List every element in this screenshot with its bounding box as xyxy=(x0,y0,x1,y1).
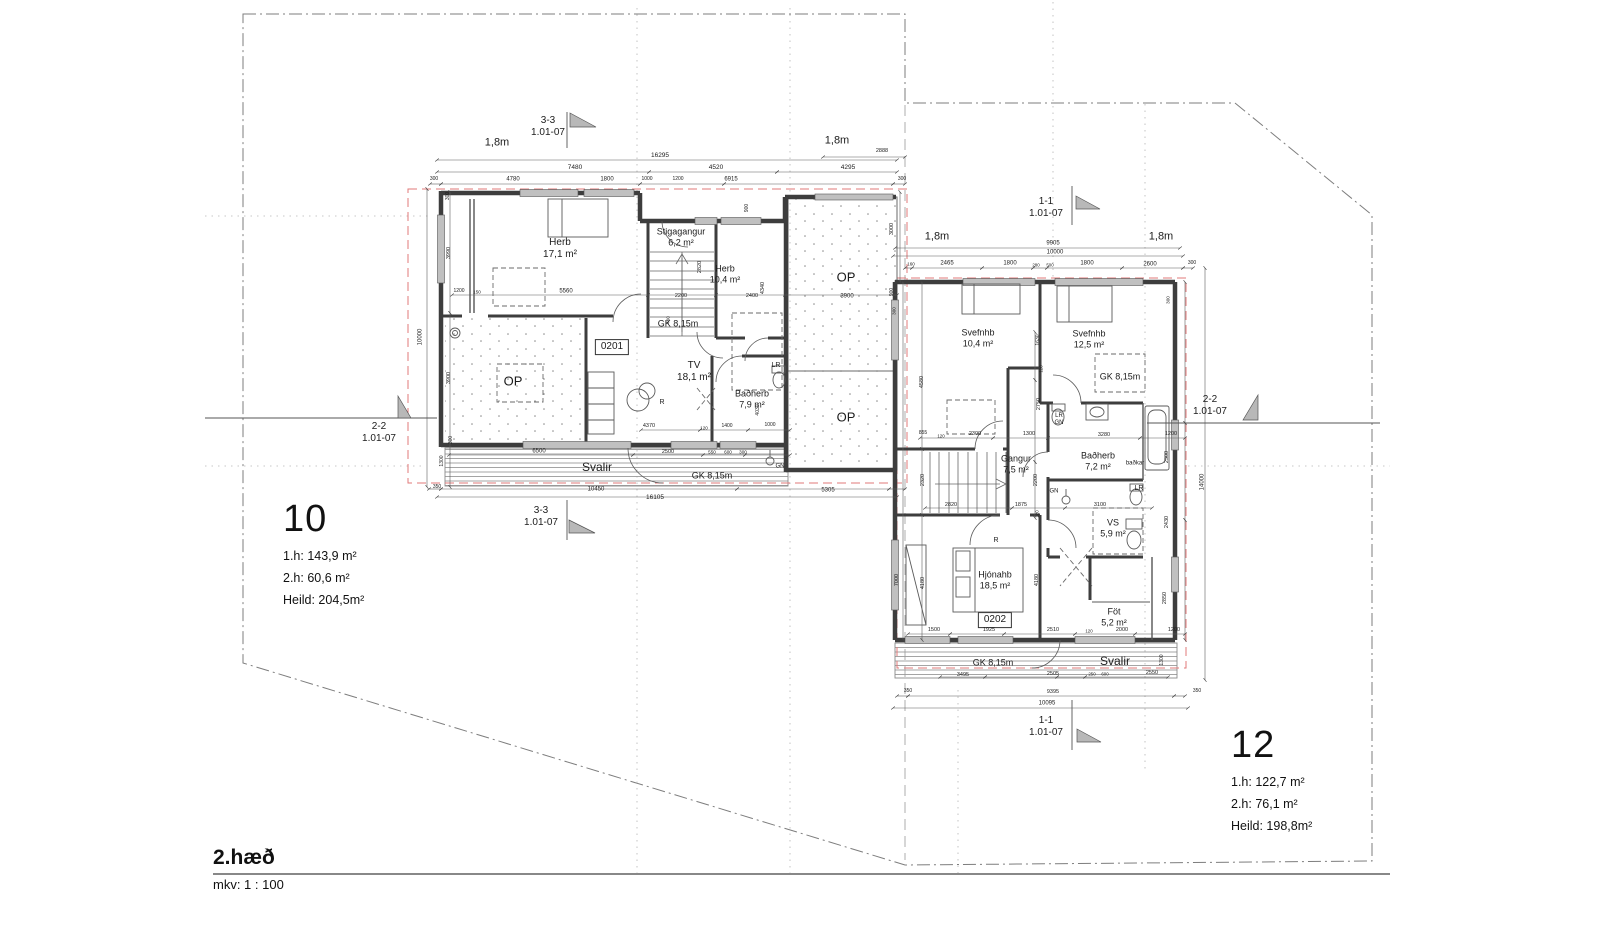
unit-12-summary: 12 1.h: 122,7 m²2.h: 76,1 m²Heild: 198,8… xyxy=(1231,724,1312,833)
scale-label: mkv: 1 : 100 xyxy=(213,877,1393,892)
title-block: 2.hæð mkv: 1 : 100 xyxy=(213,846,1393,892)
section-flag-3-3-top xyxy=(570,113,596,127)
unit-10-area-line-2: Heild: 204,5m² xyxy=(283,593,364,607)
floor-title: 2.hæð xyxy=(213,846,1393,870)
unit-10-summary: 10 1.h: 143,9 m²2.h: 60,6 m²Heild: 204,5… xyxy=(283,498,364,607)
unit-12-area-line-2: Heild: 198,8m² xyxy=(1231,819,1312,833)
title-rule xyxy=(213,873,1390,875)
section-flag-2-2-right xyxy=(1243,395,1258,420)
unit-10-areas: 1.h: 143,9 m²2.h: 60,6 m²Heild: 204,5m² xyxy=(283,549,364,607)
unit-12-area-line-0: 1.h: 122,7 m² xyxy=(1231,775,1312,789)
op-area-texture xyxy=(445,197,897,470)
unit-10-area-line-0: 1.h: 143,9 m² xyxy=(283,549,364,563)
floorplan-linework xyxy=(0,0,1600,949)
unit-12-number: 12 xyxy=(1231,724,1312,767)
unit-10-area-line-1: 2.h: 60,6 m² xyxy=(283,571,364,585)
unit-12-area-line-1: 2.h: 76,1 m² xyxy=(1231,797,1312,811)
stairs-unit12 xyxy=(930,452,1006,513)
unit-10-number: 10 xyxy=(283,498,364,541)
drawing-sheet: 3-3 1.01-073-3 1.01-071-1 1.01-071-1 1.0… xyxy=(0,0,1600,949)
stairs-unit10 xyxy=(650,252,714,336)
section-flag-1-1-bottom xyxy=(1077,729,1101,742)
section-flag-1-1-top xyxy=(1076,196,1100,209)
section-flag-2-2-left xyxy=(398,396,411,418)
section-flag-3-3-bottom xyxy=(569,520,595,533)
unit-12-areas: 1.h: 122,7 m²2.h: 76,1 m²Heild: 198,8m² xyxy=(1231,775,1312,833)
